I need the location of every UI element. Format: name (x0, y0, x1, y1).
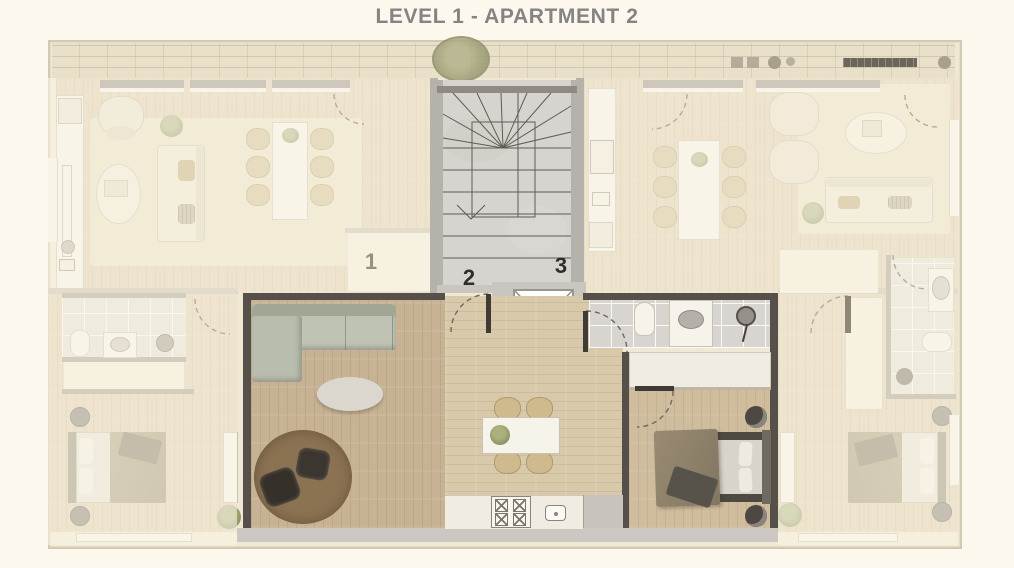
right-apartment-door-arc (652, 94, 687, 129)
apartment2-bedroom-door-leaf (635, 386, 674, 391)
apartment2-bathroom-door-arc (586, 311, 627, 352)
right-apartment-corner-door-arc (905, 95, 937, 127)
right-apartment-bedroom-door-leaf (845, 296, 851, 333)
left-apartment-door-arc (334, 94, 364, 124)
apartment2-bathroom-door-leaf (583, 311, 588, 352)
apartment2-bedroom-door-arc (637, 391, 673, 427)
right-apartment-bathroom-door-arc (893, 255, 927, 289)
apartment2-entry-door-arc (451, 294, 489, 332)
apartment2-entry-door-leaf (486, 294, 491, 333)
left-apartment-bathroom-door-arc (195, 299, 230, 334)
door-swing-overlay (0, 0, 1014, 568)
right-apartment-bedroom-door-arc (811, 296, 848, 333)
floor-plan-canvas: LEVEL 1 - APARTMENT 2 (0, 0, 1014, 568)
